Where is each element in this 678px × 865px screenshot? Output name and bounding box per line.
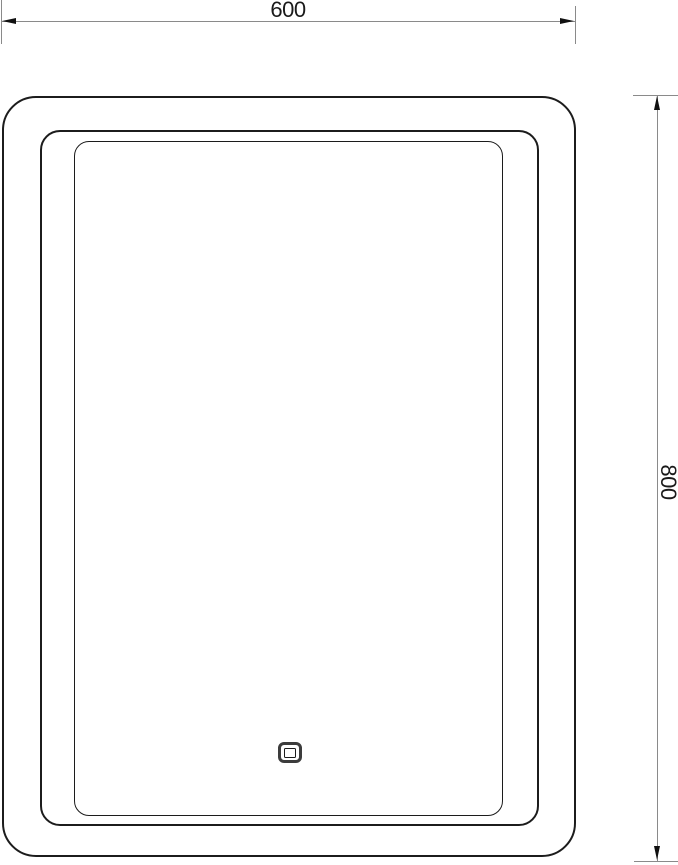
arrowhead-right-icon bbox=[560, 18, 574, 24]
height-extension-line-bottom bbox=[634, 861, 678, 862]
touch-sensor-icon bbox=[278, 742, 302, 763]
arrowhead-down-icon bbox=[654, 846, 660, 860]
height-dimension-label: 800 bbox=[655, 432, 678, 532]
arrowhead-left-icon bbox=[2, 18, 16, 24]
drawing-sheet: 600 800 bbox=[0, 0, 678, 865]
width-dimension-label: 600 bbox=[238, 0, 338, 23]
arrowhead-up-icon bbox=[654, 96, 660, 110]
width-extension-line-right bbox=[575, 6, 576, 44]
mirror-led-outline bbox=[74, 141, 503, 816]
touch-sensor-inner-square bbox=[284, 748, 296, 758]
